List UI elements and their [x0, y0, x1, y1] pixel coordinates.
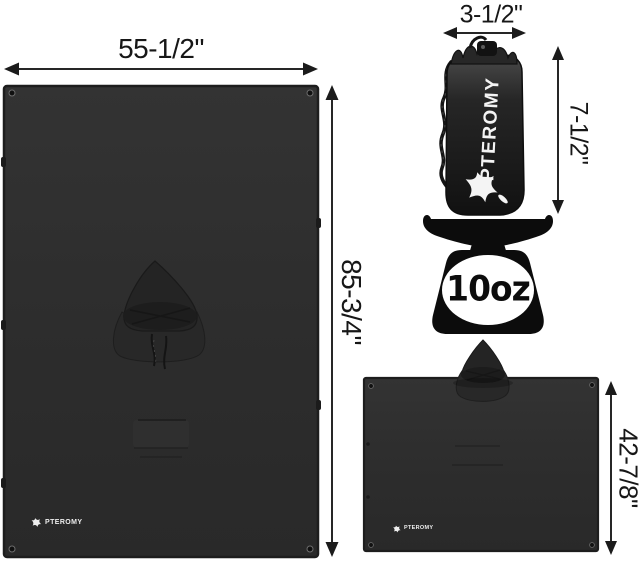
grommet: [366, 442, 370, 446]
poncho-front-view: [364, 340, 598, 551]
stuff-sack-icon: [441, 27, 564, 215]
diagram-artwork: [0, 0, 640, 562]
poncho-brand-text: PTEROMY: [404, 526, 433, 532]
poncho-hood-icon: [453, 340, 513, 401]
sack-height-label: 7-1/2": [564, 102, 593, 165]
edge-tab: [316, 218, 321, 228]
grommet: [9, 546, 15, 552]
grommet: [9, 90, 15, 96]
weight-label: 10oz: [446, 269, 530, 309]
scale-plate: [423, 215, 553, 247]
grommet: [307, 90, 313, 96]
grommet: [590, 543, 595, 548]
grommet: [369, 543, 374, 548]
edge-tab: [1, 478, 6, 488]
poncho-height-label: 42-7/8": [613, 428, 640, 507]
star-icon: [30, 516, 43, 529]
tarp-flat-view: [1, 86, 321, 557]
grommet: [590, 383, 595, 388]
tarp-width-label: 55-1/2": [118, 33, 204, 65]
star-icon: [392, 524, 402, 534]
sack-width-label: 3-1/2": [460, 1, 523, 30]
tarp-brand-logo: PTEROMY: [30, 516, 82, 529]
cord-lock-icon: [477, 41, 497, 56]
grommet: [307, 546, 313, 552]
tarp-brand-text: PTEROMY: [45, 519, 82, 526]
edge-tab: [1, 157, 6, 167]
grommet: [366, 495, 370, 499]
product-dimension-diagram: 55-1/2" 85-3/4" 3-1/2" 7-1/2" 42-7/8" 10…: [0, 0, 640, 562]
tarp-height-label: 85-3/4": [335, 259, 367, 345]
cord-lock-highlight: [481, 45, 485, 49]
poncho-brand-logo: PTEROMY: [392, 524, 433, 534]
grommet: [369, 384, 374, 389]
sack-height-arrow: [552, 46, 564, 214]
edge-tab: [1, 320, 6, 330]
edge-tab: [316, 400, 321, 410]
